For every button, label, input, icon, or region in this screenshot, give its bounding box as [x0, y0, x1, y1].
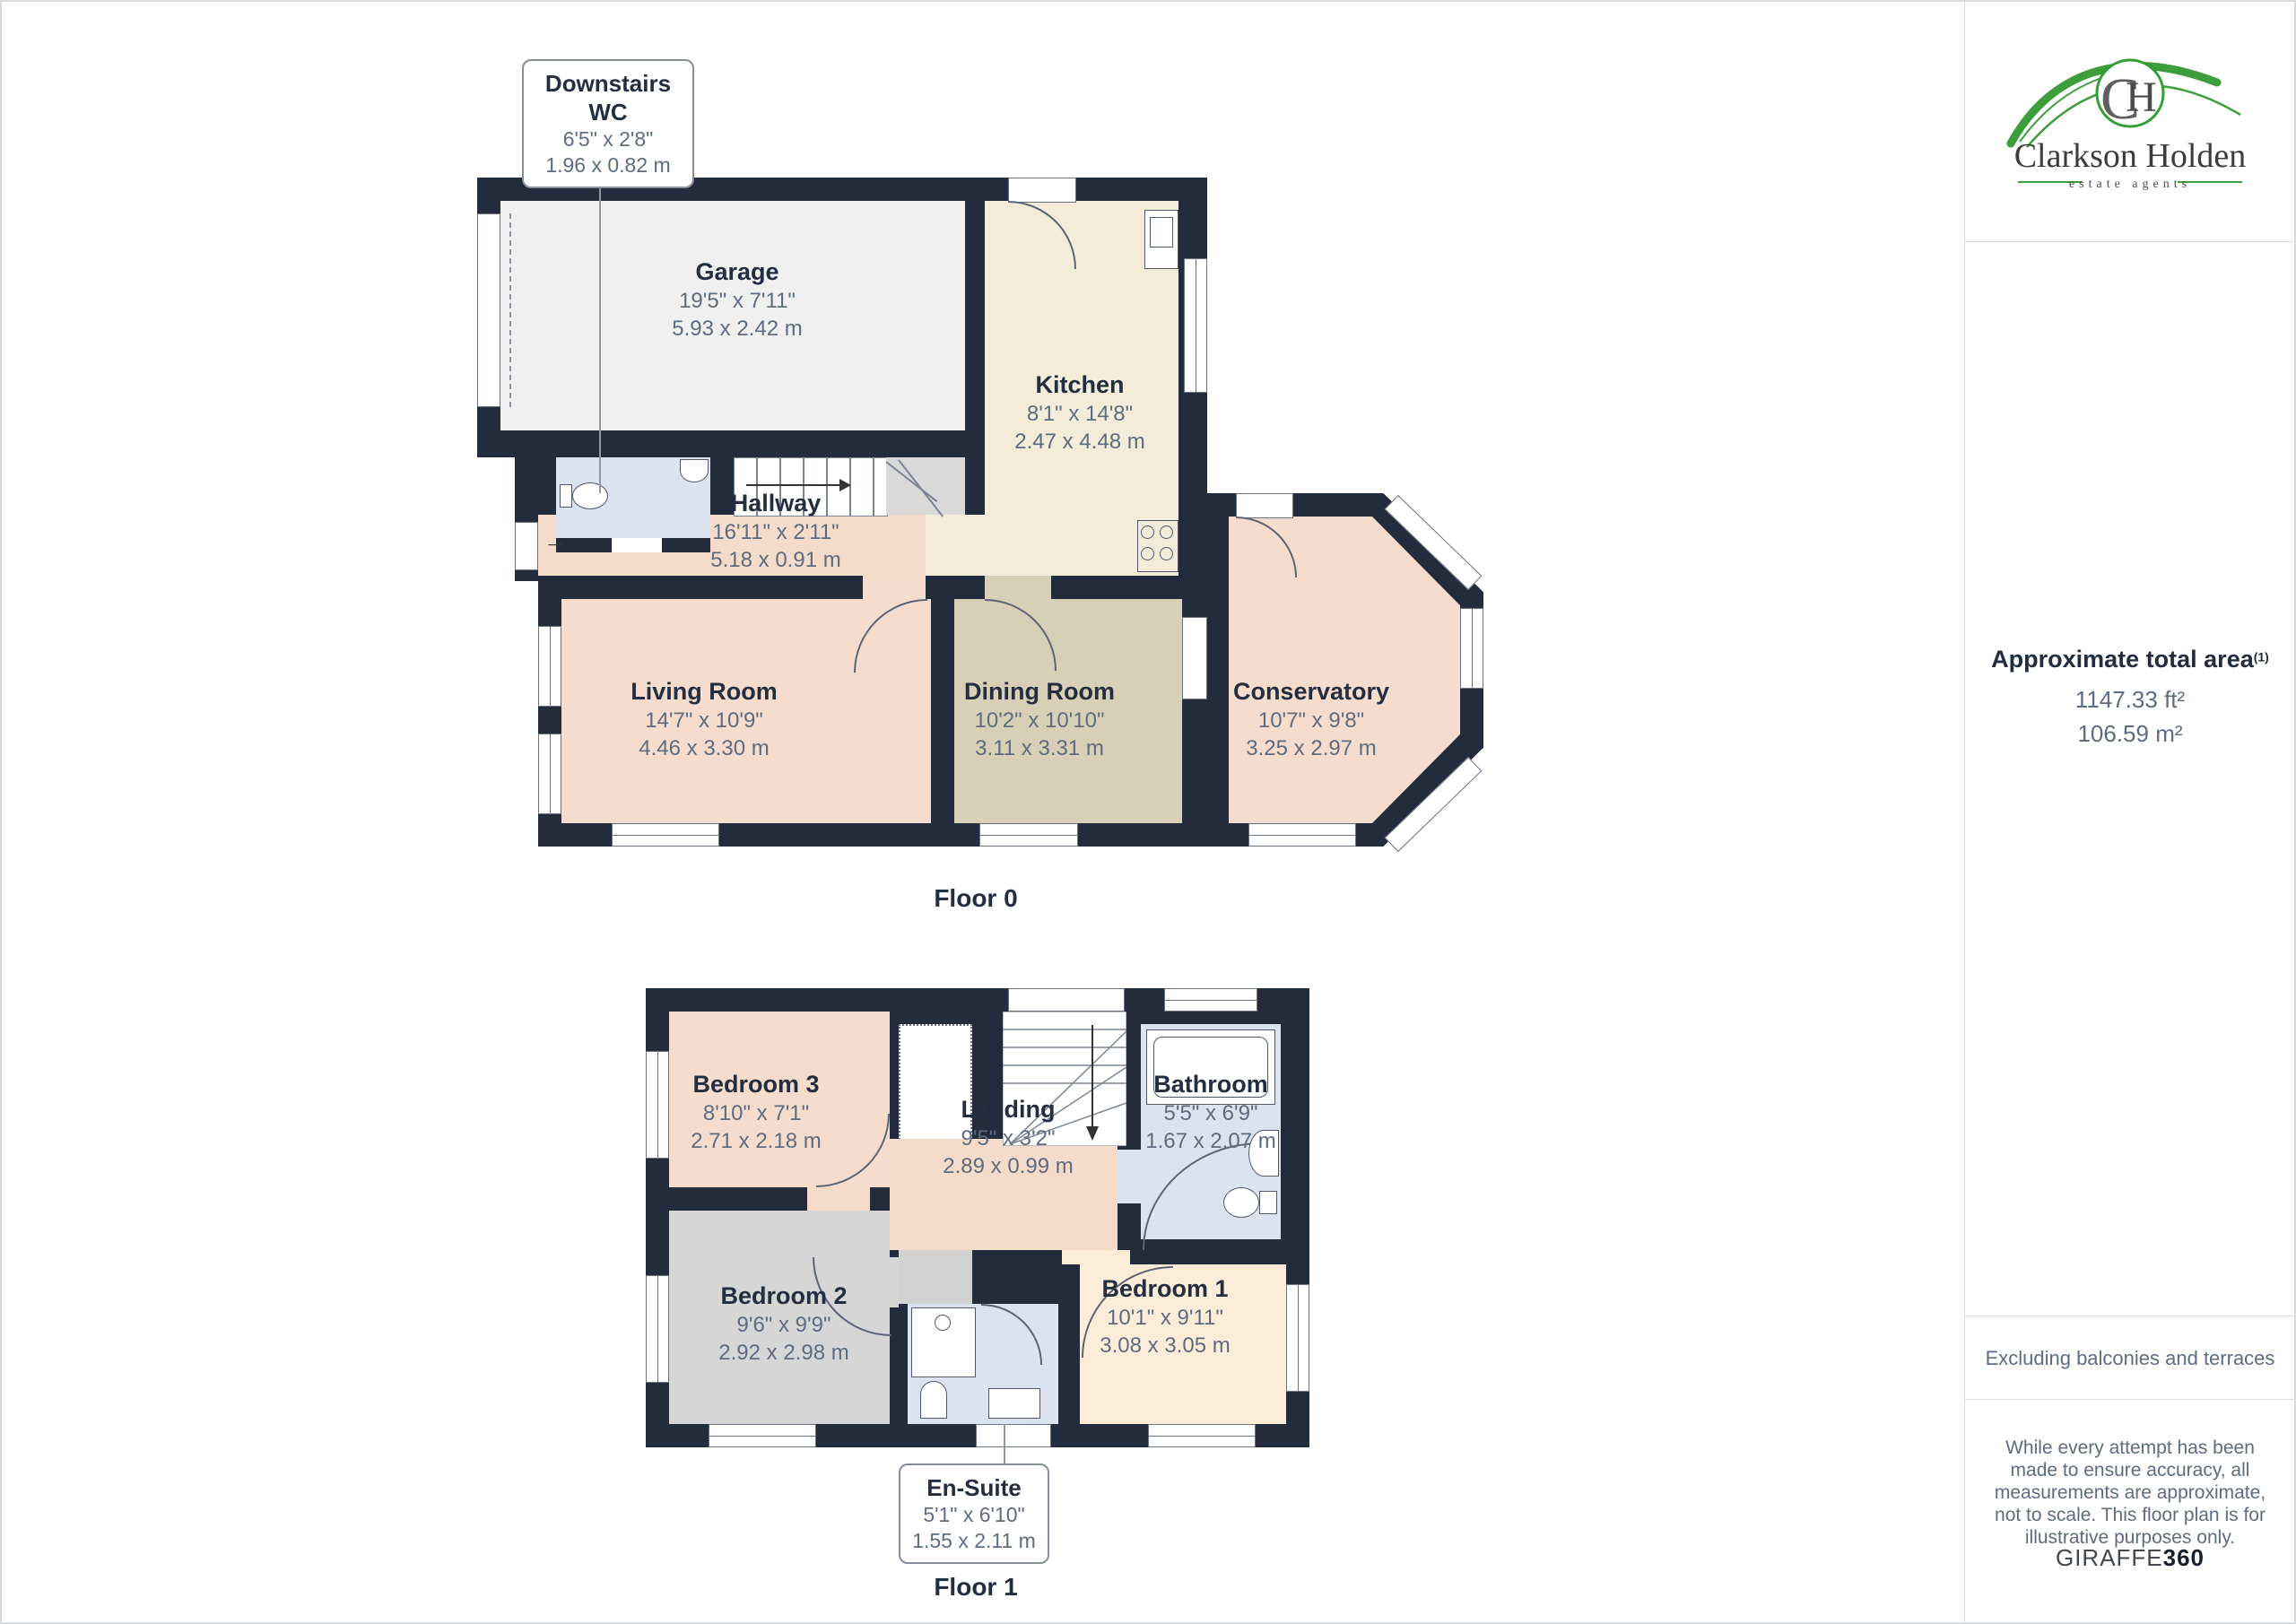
living-window-left-2	[538, 734, 561, 814]
floor-1-plan: Bedroom 3 8'10" x 7'1" 2.71 x 2.18 m Lan…	[646, 988, 1309, 1447]
wc-callout-leader-line	[599, 145, 601, 493]
living-window-bottom	[612, 823, 719, 847]
total-area-block: Approximate total area(1) 1147.33 ft² 10…	[1975, 646, 2285, 751]
sidebar-section-divider-3	[1965, 1399, 2296, 1400]
bathroom-window-top	[1164, 988, 1257, 1012]
giraffe360-text: GIRAFFE	[2056, 1544, 2163, 1571]
conservatory-window-bottom	[1248, 823, 1356, 847]
dining-window-bottom	[979, 823, 1078, 847]
total-area-footnote-marker: (1)	[2254, 650, 2269, 664]
living-door-opening	[863, 576, 926, 599]
bedroom1-window-bottom	[1148, 1424, 1256, 1447]
cupboard	[899, 1024, 972, 1142]
conservatory-door-opening	[1236, 493, 1293, 518]
giraffe360-brandmark: GIRAFFE360	[1975, 1544, 2285, 1572]
stairwell-top-opening	[1008, 988, 1125, 1012]
callout-downstairs-wc: Downstairs WC 6'5" x 2'8" 1.96 x 0.82 m	[522, 59, 694, 188]
wc-toilet	[572, 482, 608, 509]
bedroom3-window-left	[646, 1051, 669, 1159]
bedroom1-door-opening	[1062, 1250, 1130, 1264]
dining-conservatory-opening	[1182, 617, 1207, 699]
bedroom2-window-bottom	[709, 1424, 816, 1447]
wc-door-opening	[612, 538, 662, 552]
conservatory-window-right	[1460, 608, 1483, 689]
stove-burner-1	[1141, 525, 1154, 539]
total-area-ft: 1147.33 ft²	[1975, 682, 2285, 716]
ensuite-bottom-opening	[976, 1424, 1051, 1447]
logo-monogram-h: H	[2126, 74, 2157, 121]
bathroom-toilet-cistern	[1259, 1191, 1277, 1214]
garage-door-dashed-line	[509, 213, 511, 407]
wc-sink	[680, 459, 709, 482]
entry-arrow-icon: →	[544, 529, 567, 552]
dining-door-opening	[985, 576, 1051, 599]
landing-corridor	[899, 1250, 972, 1304]
stove-burner-3	[1141, 547, 1154, 560]
logo-tagline: estate agents	[2069, 178, 2191, 191]
floor-0-label: Floor 0	[886, 884, 1065, 913]
bathtub-inner	[1153, 1037, 1268, 1098]
ensuite-callout-leader-line	[1004, 1424, 1005, 1467]
hallway-kitchen-junction	[926, 515, 985, 576]
disclaimer-text: While every attempt has been made to ens…	[1986, 1437, 2274, 1549]
bedroom3-door-opening	[807, 1187, 870, 1211]
ensuite-shower-head	[935, 1315, 951, 1331]
stove-burner-4	[1160, 547, 1173, 560]
total-area-title: Approximate total area	[1991, 646, 2254, 673]
floor-0-plan: → Garage 19'5" x 7'11" 5	[477, 178, 1485, 850]
kitchen-sink-basin	[1150, 217, 1173, 248]
stairs-floor1	[1003, 1012, 1126, 1146]
bathroom-sink	[1248, 1130, 1279, 1177]
giraffe360-suffix: 360	[2163, 1544, 2205, 1571]
bathroom-toilet	[1223, 1187, 1259, 1218]
room-landing	[890, 1139, 1118, 1250]
sidebar-section-divider-1	[1965, 241, 2296, 242]
total-area-m: 106.59 m²	[1975, 716, 2285, 751]
floorplan-page: → Garage 19'5" x 7'11" 5	[0, 0, 2296, 1624]
bedroom2-window-left	[646, 1275, 669, 1383]
stair-direction-arrowhead	[839, 479, 851, 491]
stairs-floor0-landing	[886, 457, 965, 515]
garage-door-opening	[477, 213, 500, 407]
stairs-floor0	[734, 457, 888, 517]
callout-ensuite: En-Suite 5'1" x 6'10" 1.55 x 2.11 m	[899, 1463, 1049, 1564]
stove-burner-2	[1160, 525, 1173, 539]
room-garage	[500, 201, 965, 430]
floor-1-label: Floor 1	[886, 1573, 1065, 1602]
bedroom1-window-right	[1286, 1284, 1309, 1392]
bathroom-door-opening	[1118, 1150, 1141, 1203]
sidebar-divider	[1964, 2, 1965, 1624]
kitchen-door-opening	[1008, 178, 1076, 203]
sidebar-section-divider-2	[1965, 1316, 2296, 1316]
stair-direction-line	[746, 484, 839, 486]
living-window-left-1	[538, 626, 561, 707]
kitchen-window	[1184, 258, 1207, 393]
wc-cistern	[560, 484, 572, 508]
front-door-opening	[515, 522, 538, 570]
ensuite-sink	[988, 1388, 1040, 1419]
logo-wordmark: Clarkson Holden	[2014, 137, 2247, 175]
clarkson-holden-logo: C H Clarkson Holden estate agents	[2000, 43, 2260, 204]
ensuite-toilet	[920, 1381, 947, 1419]
excluding-note: Excluding balconies and terraces	[1975, 1347, 2285, 1370]
